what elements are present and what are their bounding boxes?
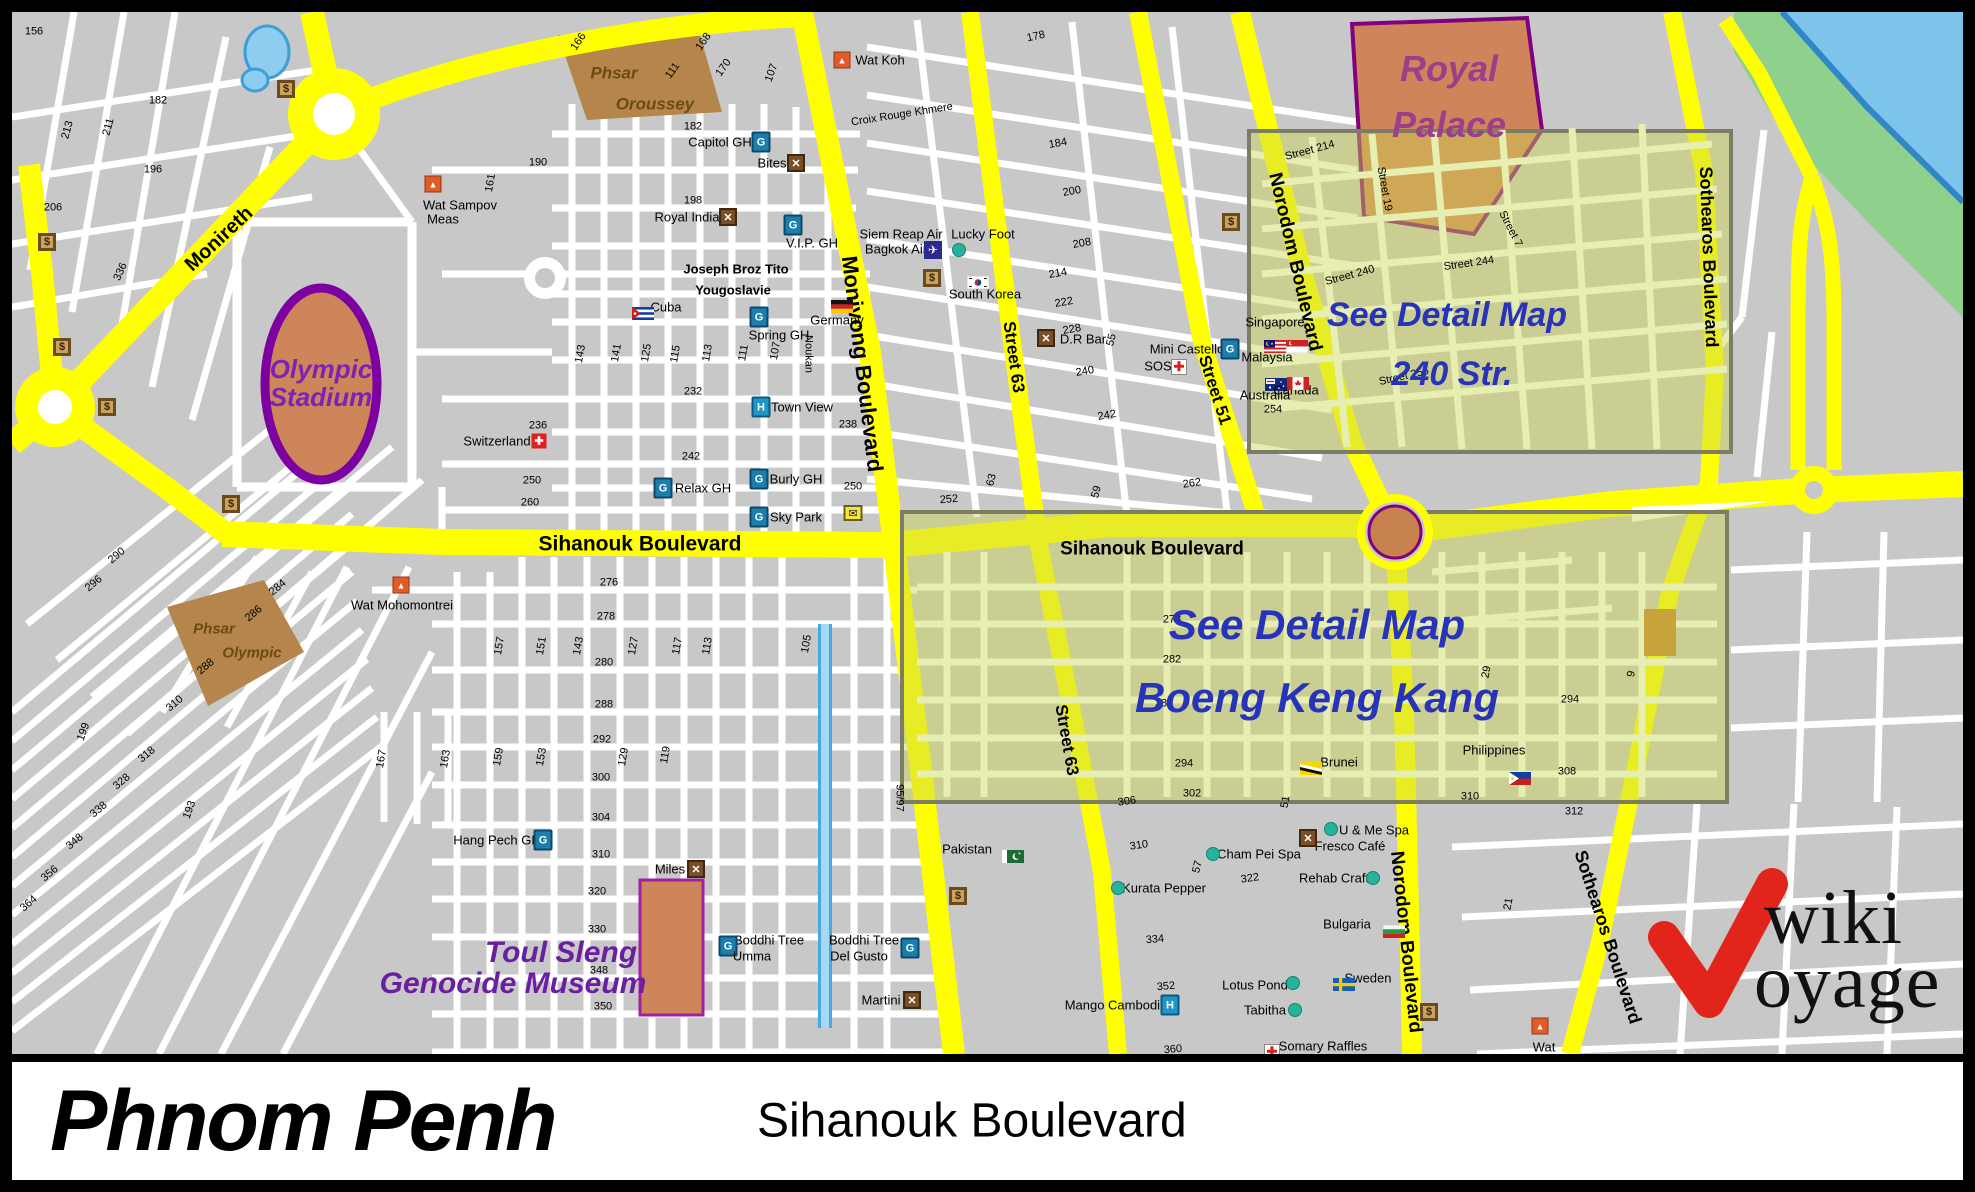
street-number: 151: [535, 636, 549, 656]
street-number: 312: [1565, 807, 1583, 818]
poi-label: Hang Pech GH: [453, 834, 540, 847]
poi-label: Kurata Pepper: [1122, 882, 1206, 895]
street-number: 334: [1145, 934, 1164, 947]
street-number: 51: [1280, 795, 1293, 809]
street-name: Croix Rouge Khmere: [850, 102, 953, 129]
guesthouse-icon: G: [750, 469, 769, 490]
street-number: 127: [627, 636, 641, 656]
street-number: 236: [529, 421, 547, 432]
street-number: 292: [593, 735, 611, 746]
street-number: 352: [1156, 981, 1175, 994]
medical-cross-icon: ✚: [1171, 359, 1187, 375]
airline-icon: ✈: [924, 241, 942, 259]
poi-label: V.I.P. GH: [786, 237, 838, 250]
guesthouse-icon: G: [901, 938, 920, 959]
street-number: 356: [39, 864, 60, 884]
street-number: 336: [112, 261, 130, 282]
boulevard-label: Sihanouk Boulevard: [538, 534, 741, 555]
boulevard-label: Sothearos Boulevard: [1571, 848, 1644, 1026]
restaurant-icon: ✕: [719, 208, 737, 226]
post-office-icon: ✉: [844, 505, 863, 521]
street-name: Street 214: [1284, 139, 1336, 163]
street-number: 143: [574, 344, 588, 364]
spa-dot-icon: [1206, 847, 1220, 861]
street-number: 167: [375, 749, 389, 769]
street-number: 322: [1240, 872, 1260, 885]
money-exchange-icon: $: [38, 233, 56, 251]
street-name: Street 240: [1324, 264, 1376, 288]
city-map: MonirethMonivong BoulevardSihanouk Boule…: [12, 12, 1963, 1054]
street-number: 308: [1558, 767, 1576, 778]
hotel-icon: H: [1161, 995, 1180, 1016]
poi-label: Boddhi Tree: [829, 934, 899, 947]
boulevard-label: Street 63: [1052, 703, 1081, 777]
street-number: 302: [1183, 789, 1201, 800]
street-number: 280: [595, 658, 613, 669]
street-number: 288: [595, 700, 613, 711]
poi-label: Miles: [655, 863, 685, 876]
poi-label: Umma: [733, 950, 771, 963]
street-number: 119: [659, 745, 673, 764]
landmark-label: See Detail Map: [1169, 604, 1465, 646]
landmark-label: Royal: [1400, 51, 1498, 87]
street-name: Street 19: [1375, 166, 1394, 212]
hotel-icon: H: [752, 397, 771, 418]
street-number: 242: [682, 452, 700, 463]
street-number: 107: [769, 341, 783, 361]
boulevard-label: Street 51: [1196, 353, 1234, 427]
street-number: 178: [1026, 30, 1046, 45]
guesthouse-icon: G: [750, 507, 769, 528]
landmark-label: Palace: [1392, 107, 1506, 143]
map-subtitle: Sihanouk Boulevard: [757, 1094, 1187, 1149]
street-number: 157: [493, 636, 507, 656]
street-number: 161: [484, 173, 498, 193]
street-number: 328: [111, 772, 132, 792]
landmark-label: Phsar: [590, 65, 637, 82]
city-title: Phnom Penh: [50, 1072, 556, 1171]
street-number: 254: [1264, 405, 1282, 416]
street-number: 238: [839, 420, 857, 431]
street-number: 338: [88, 800, 109, 820]
street-number: 294: [1561, 695, 1579, 706]
street-number: 200: [1062, 185, 1082, 199]
street-number: 211: [101, 117, 116, 137]
boulevard-label: Monivong Boulevard: [838, 255, 886, 474]
street-number: 360: [1163, 1044, 1182, 1054]
street-number: 306: [1117, 795, 1137, 808]
street-number: 59: [1090, 485, 1104, 500]
street-number: 141: [610, 343, 624, 363]
restaurant-icon: ✕: [903, 991, 921, 1009]
street-number: 282: [1163, 655, 1181, 666]
guesthouse-icon: G: [784, 215, 803, 236]
street-number: 276: [600, 578, 618, 589]
street-number: 294: [1175, 759, 1193, 770]
landmark-label: Stadium: [270, 384, 373, 410]
landmark-label: 240 Str.: [1392, 357, 1513, 391]
poi-label: Singapore: [1245, 316, 1304, 329]
street-number: 196: [144, 165, 162, 176]
restaurant-icon: ✕: [787, 154, 805, 172]
boulevard-label: Monireth: [181, 203, 256, 275]
street-number: 310: [1129, 839, 1149, 852]
street-name: Yougoslavie: [695, 284, 771, 297]
boulevard-label: Sothearos Boulevard: [1697, 166, 1721, 348]
street-number: 199: [76, 721, 93, 742]
landmark-label: Olympic: [222, 646, 281, 661]
street-number: 284: [267, 578, 288, 598]
restaurant-icon: ✕: [1299, 829, 1317, 847]
poi-label: Wat Koh: [855, 54, 904, 67]
poi-label: Meas: [427, 213, 459, 226]
restaurant-icon: ✕: [1037, 329, 1055, 347]
street-number: 286: [243, 604, 264, 624]
landmark-label: Boeng Keng Kang: [1135, 677, 1499, 719]
poi-label: Bagkok Air: [865, 243, 927, 256]
poi-label: Wat Mohomontrei: [351, 599, 453, 612]
medical-cross-icon: ✚: [1264, 1044, 1280, 1054]
poi-label: Spring GH: [749, 329, 810, 342]
poi-label: Philippines: [1463, 744, 1526, 757]
street-number: 252: [939, 494, 958, 507]
poi-label: U & Me Spa: [1339, 824, 1409, 837]
street-number: 310: [164, 694, 185, 714]
street-number: 107: [764, 62, 781, 83]
street-number: 111: [737, 344, 751, 362]
wat-temple-icon: ▲: [425, 176, 442, 193]
wat-temple-icon: ▲: [1532, 1018, 1549, 1035]
guesthouse-icon: G: [752, 132, 771, 153]
street-number: 208: [1072, 237, 1092, 251]
street-number: 190: [529, 158, 547, 169]
restaurant-icon: ✕: [687, 860, 705, 878]
logo-voyage-text: oyage: [1754, 939, 1940, 1026]
poi-label: Boddhi Tree: [734, 934, 804, 947]
landmark-label: Genocide Museum: [380, 969, 647, 999]
street-number: 222: [1054, 296, 1074, 310]
street-number: 159: [492, 747, 506, 767]
spa-dot-icon: [1366, 871, 1380, 885]
landmark-label: Olympic: [270, 356, 373, 382]
guesthouse-icon: G: [750, 307, 769, 328]
money-exchange-icon: $: [98, 398, 116, 416]
poi-label: Cuba: [650, 301, 681, 314]
street-number: 129: [617, 747, 631, 767]
boulevard-label: Sihanouk Boulevard: [1060, 540, 1244, 559]
guesthouse-icon: G: [654, 478, 673, 499]
landmark-label: See Detail Map: [1327, 298, 1567, 332]
money-exchange-icon: $: [222, 495, 240, 513]
poi-label: Brunei: [1320, 756, 1358, 769]
map-page: MonirethMonivong BoulevardSihanouk Boule…: [0, 0, 1975, 1192]
money-exchange-icon: $: [949, 887, 967, 905]
boulevard-label: Street 63: [1001, 320, 1028, 393]
poi-label: Siem Reap Air: [859, 228, 942, 241]
street-number: 260: [521, 498, 539, 509]
street-number: 320: [588, 887, 606, 898]
spa-dot-icon: [1286, 976, 1300, 990]
street-number: 310: [1461, 792, 1479, 803]
street-number: 242: [1097, 409, 1117, 423]
poi-label: Tabitha: [1244, 1004, 1286, 1017]
poi-label: Lotus Pond: [1222, 979, 1288, 992]
landmark-label: Toul Sleng: [485, 938, 637, 968]
poi-label: Somary Raffles: [1279, 1040, 1368, 1053]
street-number: 168: [694, 31, 714, 52]
street-name: Joseph Broz Tito: [683, 263, 788, 276]
street-number: 153: [535, 747, 549, 767]
poi-label: Germany: [810, 314, 863, 327]
poi-label: Mango Cambodia: [1065, 999, 1168, 1012]
street-number: 318: [136, 745, 157, 765]
street-name: Street 7: [1496, 209, 1523, 248]
poi-label: SOS: [1144, 360, 1171, 373]
wat-temple-icon: ▲: [393, 577, 410, 594]
street-number: 182: [684, 122, 702, 133]
wat-temple-icon: ▲: [834, 52, 851, 69]
street-number: 117: [671, 636, 685, 655]
title-bar: Phnom Penh Sihanouk Boulevard: [12, 1062, 1963, 1180]
poi-label: Fresco Café: [1315, 840, 1386, 853]
street-number: 278: [597, 612, 615, 623]
street-number: 198: [684, 196, 702, 207]
street-number: 288: [195, 657, 216, 677]
poi-label: Royal India: [654, 211, 719, 224]
street-number: 184: [1048, 137, 1068, 151]
street-number: 21: [1503, 897, 1516, 911]
poi-label: Bites: [758, 157, 787, 170]
street-number: 111: [664, 61, 683, 81]
street-number: 310: [592, 850, 610, 861]
poi-label: Lucky Foot: [951, 228, 1015, 241]
poi-label: Wat: [1533, 1041, 1556, 1054]
street-number: 143: [572, 636, 586, 656]
poi-label: Switzerland: [463, 435, 530, 448]
street-number: 166: [569, 31, 589, 52]
street-number: 364: [18, 894, 39, 914]
poi-label: Relax GH: [675, 482, 731, 495]
spa-dot-icon: [1111, 881, 1125, 895]
street-number: 240: [1075, 365, 1095, 379]
street-number: 296: [83, 574, 104, 594]
street-number: 300: [592, 773, 610, 784]
money-exchange-icon: $: [53, 338, 71, 356]
landmark-label: Phsar: [193, 622, 235, 637]
street-number: 105: [800, 634, 814, 654]
street-number: 206: [44, 203, 62, 214]
street-name: 95/97: [894, 784, 905, 812]
guesthouse-icon: G: [534, 830, 553, 851]
street-number: 213: [60, 120, 75, 141]
money-exchange-icon: $: [1222, 213, 1240, 231]
street-number: 113: [701, 636, 715, 655]
street-number: 290: [106, 546, 127, 566]
money-exchange-icon: $: [277, 80, 295, 98]
street-name: Street 244: [1443, 255, 1495, 273]
money-exchange-icon: $: [1420, 1003, 1438, 1021]
street-number: 262: [1182, 477, 1202, 490]
street-number: 156: [25, 27, 43, 38]
spa-dot-icon: [1324, 822, 1338, 836]
street-number: 182: [149, 96, 167, 107]
street-number: 170: [714, 57, 734, 78]
street-number: 232: [684, 387, 702, 398]
poi-label: Pakistan: [942, 843, 992, 856]
street-number: 125: [640, 343, 654, 363]
poi-label: Capitol GH: [688, 136, 752, 149]
swiss-flag-icon: ✚: [532, 434, 547, 449]
poi-label: Martini: [861, 994, 900, 1007]
street-number: 163: [439, 749, 453, 769]
spa-dot-icon: [1288, 1003, 1302, 1017]
street-number: 113: [701, 343, 715, 362]
street-number: 350: [594, 1002, 612, 1013]
poi-label: South Korea: [949, 288, 1021, 301]
poi-label: Sky Park: [770, 511, 822, 524]
street-number: 57: [1191, 860, 1205, 875]
street-number: 304: [592, 813, 610, 824]
street-number: 55: [1105, 333, 1119, 348]
wikivoyage-logo: wiki oyage: [1642, 867, 1962, 1037]
poi-label: Rehab Craft: [1299, 872, 1369, 885]
street-number: 250: [844, 482, 862, 493]
poi-label: Mini Castello: [1150, 343, 1224, 356]
street-number: 348: [64, 832, 85, 852]
poi-label: Wat Sampov: [423, 199, 497, 212]
street-number: 115: [669, 344, 683, 363]
money-exchange-icon: $: [923, 269, 941, 287]
poi-label: Del Gusto: [830, 950, 888, 963]
poi-label: D.R Bar: [1060, 333, 1106, 346]
guesthouse-icon: G: [1221, 339, 1240, 360]
poi-label: Bulgaria: [1323, 918, 1371, 931]
street-number: 250: [523, 476, 541, 487]
landmark-label: Oroussey: [616, 96, 694, 113]
street-number: 9: [1626, 670, 1638, 678]
spa-dot-icon: [952, 243, 966, 257]
street-number: 193: [182, 799, 199, 820]
poi-label: Burly GH: [770, 473, 823, 486]
poi-label: Cham Pei Spa: [1217, 848, 1301, 861]
poi-label: Town View: [771, 401, 833, 414]
street-number: 63: [985, 473, 999, 488]
street-number: 330: [588, 925, 606, 936]
street-number: 214: [1048, 267, 1068, 281]
